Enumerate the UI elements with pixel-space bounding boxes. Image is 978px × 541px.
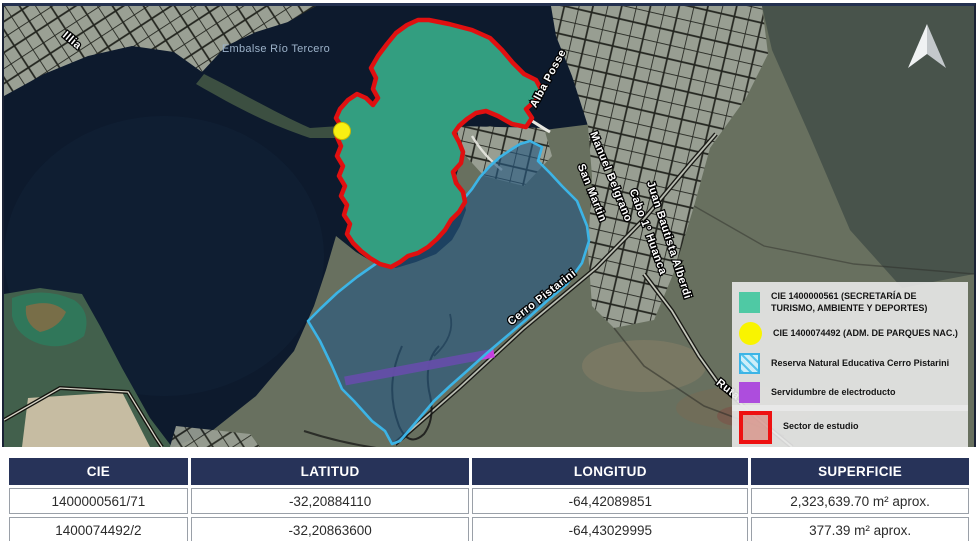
table-header-row: CIE LATITUD LONGITUD SUPERFICIE	[9, 458, 969, 485]
column-header-superficie: SUPERFICIE	[751, 458, 969, 485]
yellow-circle-icon	[739, 322, 762, 345]
cell-latitud: -32,20863600	[191, 517, 470, 541]
page-root: Embalse Río Tercero Illia Alba Posse Man…	[0, 0, 978, 541]
cell-cie: 1400000561/71	[9, 488, 188, 514]
red-outline-square-icon	[739, 411, 772, 444]
table-row: 1400000561/71 -32,20884110 -64,42089851 …	[9, 488, 969, 514]
cell-cie: 1400074492/2	[9, 517, 188, 541]
legend-item-label: Servidumbre de electroducto	[771, 387, 896, 399]
legend-item-label: CIE 1400074492 (ADM. DE PARQUES NAC.)	[773, 328, 958, 340]
purple-square-icon	[739, 382, 760, 403]
legend-item-cie-yellow: CIE 1400074492 (ADM. DE PARQUES NAC.)	[739, 322, 961, 345]
column-header-cie: CIE	[9, 458, 188, 485]
cell-longitud: -64,43029995	[472, 517, 748, 541]
cell-superficie: 2,323,639.70 m² aprox.	[751, 488, 969, 514]
column-header-latitud: LATITUD	[191, 458, 470, 485]
legend-item-label: Reserva Natural Educativa Cerro Pistarin…	[771, 358, 949, 370]
cell-latitud: -32,20884110	[191, 488, 470, 514]
column-header-longitud: LONGITUD	[472, 458, 748, 485]
teal-square-icon	[739, 292, 760, 313]
legend-panel: CIE 1400000561 (SECRETARÍA DE TURISMO, A…	[732, 282, 968, 411]
legend-item-label: Sector de estudio	[783, 421, 859, 433]
legend-item-sector: Sector de estudio	[739, 411, 859, 444]
parques-dot	[334, 123, 351, 140]
legend-item-label: CIE 1400000561 (SECRETARÍA DE TURISMO, A…	[771, 291, 961, 314]
coordinates-table: CIE LATITUD LONGITUD SUPERFICIE 14000005…	[6, 455, 972, 541]
table-row: 1400074492/2 -32,20863600 -64,43029995 3…	[9, 517, 969, 541]
cell-longitud: -64,42089851	[472, 488, 748, 514]
map-container: Embalse Río Tercero Illia Alba Posse Man…	[2, 3, 976, 447]
blue-hatch-icon	[739, 353, 760, 374]
legend-item-reserve: Reserva Natural Educativa Cerro Pistarin…	[739, 353, 961, 374]
legend-sector-panel: Sector de estudio	[732, 405, 968, 447]
legend-item-servidumbre: Servidumbre de electroducto	[739, 382, 961, 403]
legend-item-cie-green: CIE 1400000561 (SECRETARÍA DE TURISMO, A…	[739, 291, 961, 314]
cell-superficie: 377.39 m² aprox.	[751, 517, 969, 541]
water-label: Embalse Río Tercero	[222, 43, 330, 55]
